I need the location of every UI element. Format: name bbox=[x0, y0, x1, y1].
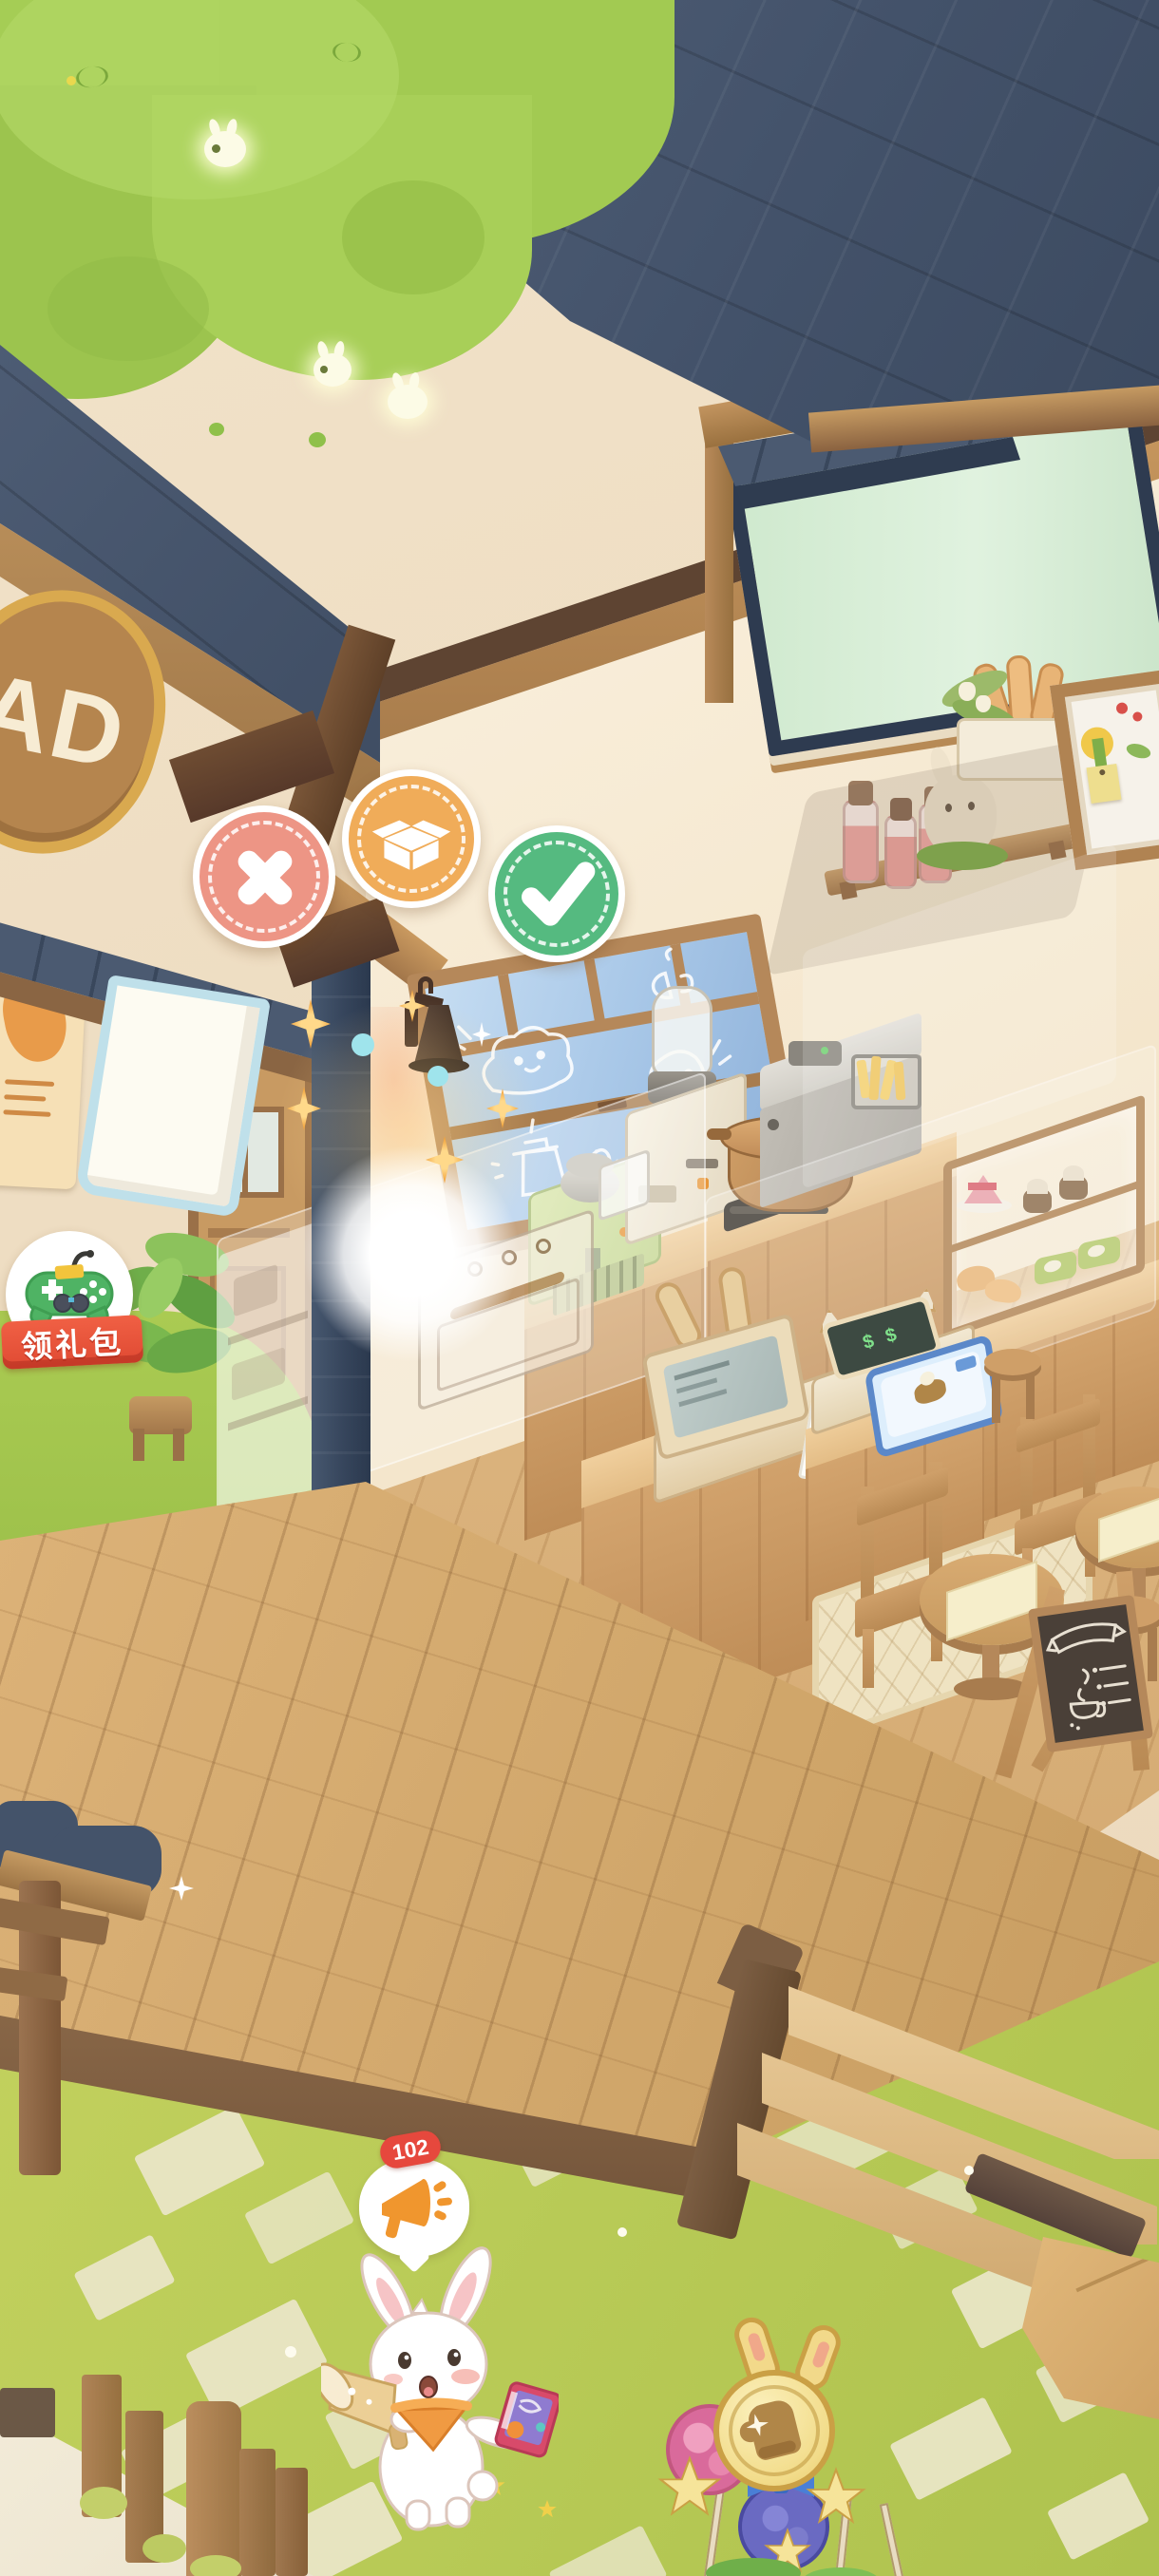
flower-dot bbox=[617, 2227, 627, 2237]
bubble-dot bbox=[427, 1066, 448, 1087]
dashed-ring bbox=[357, 785, 465, 893]
game-scene: AD bbox=[0, 0, 1159, 2576]
bubble-dot bbox=[351, 1033, 374, 1056]
announcer-rabbit[interactable] bbox=[321, 2246, 559, 2531]
rabbit-medal bbox=[713, 2370, 835, 2491]
firefly-icon bbox=[388, 385, 427, 419]
firefly-icon bbox=[313, 353, 351, 387]
cancel-button[interactable] bbox=[193, 805, 335, 948]
confirm-button[interactable] bbox=[488, 825, 625, 962]
chalk-menu-icon bbox=[1037, 1604, 1144, 1743]
tree-canopy bbox=[0, 0, 769, 418]
gift-banner-label: 领礼包 bbox=[20, 1316, 124, 1368]
leaf-cluster bbox=[803, 2567, 879, 2576]
candy-decor[interactable] bbox=[660, 2303, 964, 2576]
wood-gate bbox=[0, 1786, 165, 2299]
megaphone-icon bbox=[374, 2171, 456, 2247]
gift-banner: 领礼包 bbox=[1, 1315, 143, 1370]
menu-chalkboard[interactable] bbox=[1013, 1569, 1159, 1783]
chalkboard-board bbox=[1028, 1595, 1153, 1752]
firefly-icon bbox=[204, 131, 246, 167]
rabbit-illustration bbox=[321, 2246, 559, 2531]
x-icon bbox=[224, 837, 304, 917]
garden-fence bbox=[0, 2375, 304, 2576]
shop-sign-text: AD bbox=[0, 652, 136, 792]
flower-dot bbox=[964, 2166, 974, 2175]
tap-glow bbox=[302, 1145, 521, 1363]
stool[interactable] bbox=[984, 1349, 1045, 1436]
speech-bubble[interactable]: 102 bbox=[353, 2133, 486, 2285]
noren-curtain bbox=[75, 975, 271, 1218]
serving-station[interactable]: $ $ bbox=[806, 1292, 996, 1463]
dashed-ring bbox=[503, 841, 610, 947]
station-screen-text: $ $ bbox=[861, 1322, 903, 1354]
flower-dot bbox=[285, 2346, 296, 2358]
announcement-count: 102 bbox=[390, 2133, 430, 2165]
store-button[interactable] bbox=[342, 769, 481, 908]
gift-pack-button[interactable]: 领礼包 bbox=[2, 1227, 144, 1372]
sticky-note bbox=[1087, 764, 1122, 804]
